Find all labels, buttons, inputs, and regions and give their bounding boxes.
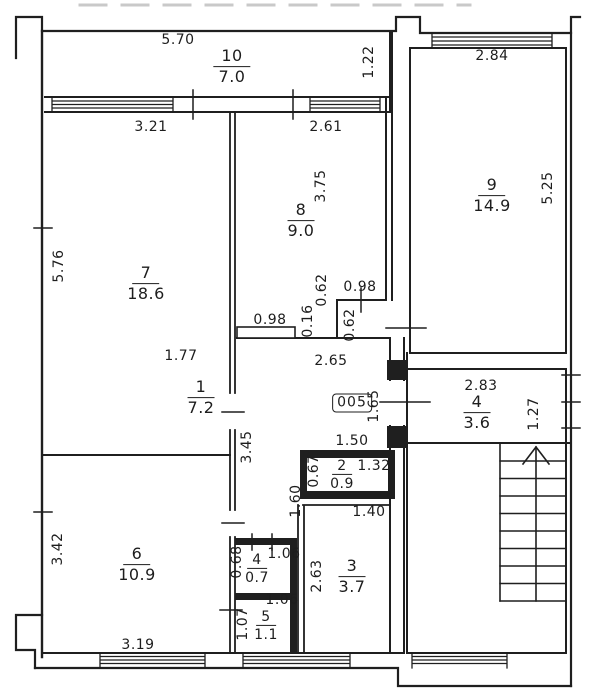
room-area: 1.1 xyxy=(254,627,278,643)
room-area: 10.9 xyxy=(118,567,156,585)
room-number: 4 xyxy=(464,393,491,413)
dim-label: 1.65 xyxy=(366,389,382,422)
dim-label: 1.40 xyxy=(352,504,385,520)
room-area: 3.6 xyxy=(464,415,491,433)
room-label-5: 51.1 xyxy=(254,609,278,643)
room-area: 14.9 xyxy=(473,198,511,216)
room-label-3: 33.7 xyxy=(339,557,366,597)
room-number: 2 xyxy=(332,458,351,475)
dim-label: 2.84 xyxy=(475,48,508,64)
dim-label: 1.32 xyxy=(357,458,390,474)
room-number: 5 xyxy=(256,609,275,626)
dim-label: 0.16 xyxy=(300,304,316,337)
dim-label: 2.65 xyxy=(314,353,347,369)
dim-label: 0.98 xyxy=(343,279,376,295)
dim-label: 0.67 xyxy=(306,454,322,487)
room-area: 0.7 xyxy=(245,570,269,586)
dim-label: 1.50 xyxy=(335,433,368,449)
dim-label: 1.77 xyxy=(164,348,197,364)
dim-label: 3.45 xyxy=(239,430,255,463)
room-area: 18.6 xyxy=(127,286,165,304)
dim-label: 1.07 xyxy=(235,607,251,640)
room-number: 7 xyxy=(133,264,160,284)
room-label-10: 107.0 xyxy=(213,47,250,87)
room-number: 8 xyxy=(288,201,315,221)
room-number: 10 xyxy=(213,47,250,67)
dim-label: 3.75 xyxy=(313,169,329,202)
room-number: 9 xyxy=(479,176,506,196)
room-label-4b: 40.7 xyxy=(245,552,269,586)
room-label-8: 89.0 xyxy=(288,201,315,241)
room-area: 7.0 xyxy=(213,69,250,87)
dim-label: 1.06 xyxy=(267,546,300,562)
dim-label: 1.22 xyxy=(361,45,377,78)
dim-label: 3.21 xyxy=(134,119,167,135)
room-number: 6 xyxy=(124,545,151,565)
dim-label: 3.19 xyxy=(121,637,154,653)
room-number: 1 xyxy=(188,378,215,398)
room-area: 9.0 xyxy=(288,223,315,241)
dim-label: 1.60 xyxy=(288,484,304,517)
dim-label: 0.98 xyxy=(253,312,286,328)
dim-label: 1.27 xyxy=(526,397,542,430)
dim-label: 0.68 xyxy=(229,545,245,578)
floor-plan: 107.0 914.9 89.0 718.6 17.2 43.6 20.9 33… xyxy=(0,0,615,693)
dim-label: 2.63 xyxy=(309,559,325,592)
floorplan-walls xyxy=(0,0,615,693)
dim-label: 5.25 xyxy=(540,171,556,204)
dim-label: 5.76 xyxy=(51,249,67,282)
dim-label: 2.61 xyxy=(309,119,342,135)
dim-label: 5.70 xyxy=(161,32,194,48)
room-label-6: 610.9 xyxy=(118,545,156,585)
room-label-1: 17.2 xyxy=(188,378,215,418)
dim-label: 1.06 xyxy=(265,592,298,608)
room-label-7: 718.6 xyxy=(127,264,165,304)
room-number: 4 xyxy=(247,552,266,569)
room-area: 0.9 xyxy=(330,476,354,492)
room-number: 3 xyxy=(339,557,366,577)
dim-label: 0.62 xyxy=(342,308,358,341)
room-label-2: 20.9 xyxy=(330,458,354,492)
room-area: 7.2 xyxy=(188,400,215,418)
dim-label: 0.62 xyxy=(314,273,330,306)
room-label-4: 43.6 xyxy=(464,393,491,433)
room-label-9: 914.9 xyxy=(473,176,511,216)
dim-label: 2.83 xyxy=(464,378,497,394)
room-area: 3.7 xyxy=(339,579,366,597)
dim-label: 3.42 xyxy=(50,532,66,565)
